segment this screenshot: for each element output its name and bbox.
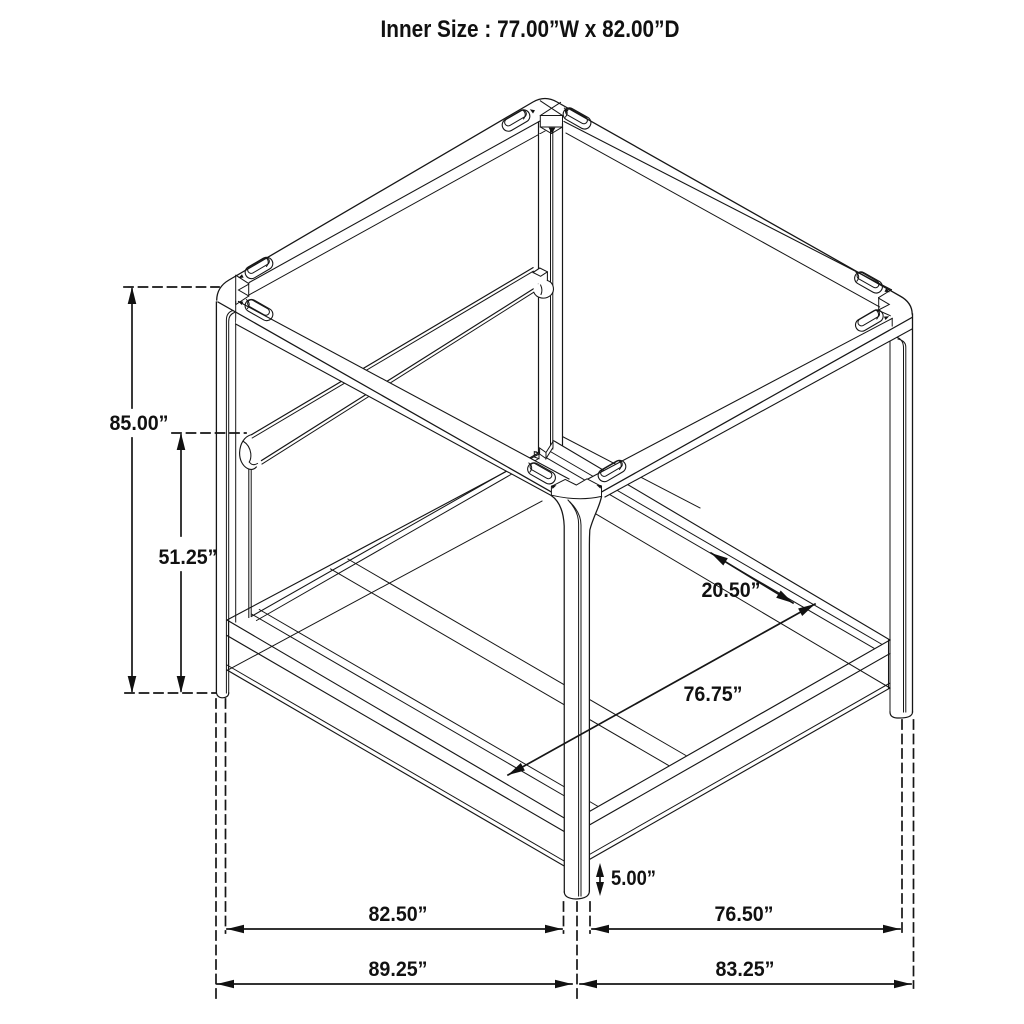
svg-text:82.50”: 82.50” — [369, 902, 428, 926]
svg-text:85.00”: 85.00” — [110, 411, 169, 435]
svg-text:5.00”: 5.00” — [611, 866, 656, 890]
svg-text:89.25”: 89.25” — [369, 957, 428, 981]
svg-text:51.25”: 51.25” — [159, 545, 218, 569]
svg-text:Inner Size : 77.00”W x 82.00”D: Inner Size : 77.00”W x 82.00”D — [381, 16, 680, 43]
svg-text:83.25”: 83.25” — [716, 957, 775, 981]
svg-text:76.50”: 76.50” — [715, 902, 774, 926]
svg-text:76.75”: 76.75” — [684, 682, 743, 706]
svg-text:20.50”: 20.50” — [702, 578, 761, 602]
